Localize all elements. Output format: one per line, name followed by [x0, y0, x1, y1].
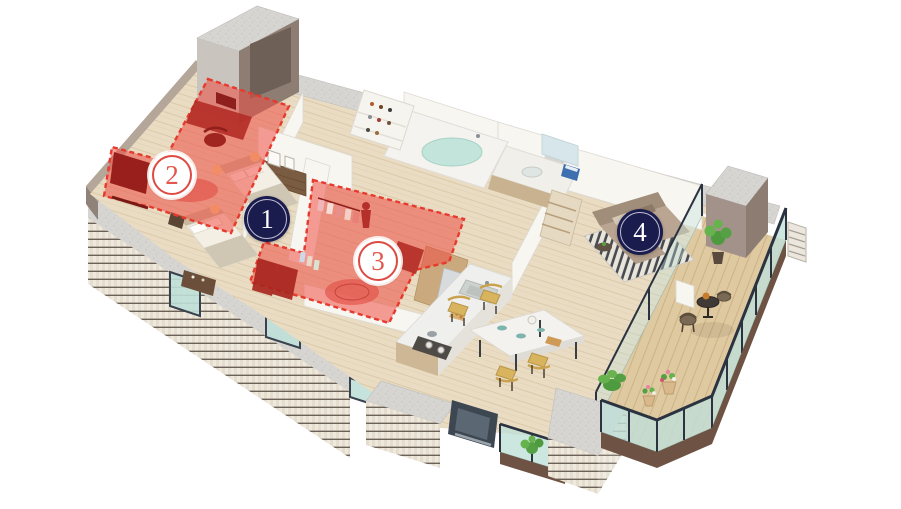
room-marker-4[interactable]: 4 [617, 209, 663, 255]
room-marker-3[interactable]: 3 [355, 238, 401, 284]
floorplan-stage: 1234 [0, 0, 901, 509]
room-marker-2[interactable]: 2 [149, 152, 195, 198]
room-marker-1[interactable]: 1 [244, 196, 290, 242]
marker-layer: 1234 [0, 0, 901, 509]
